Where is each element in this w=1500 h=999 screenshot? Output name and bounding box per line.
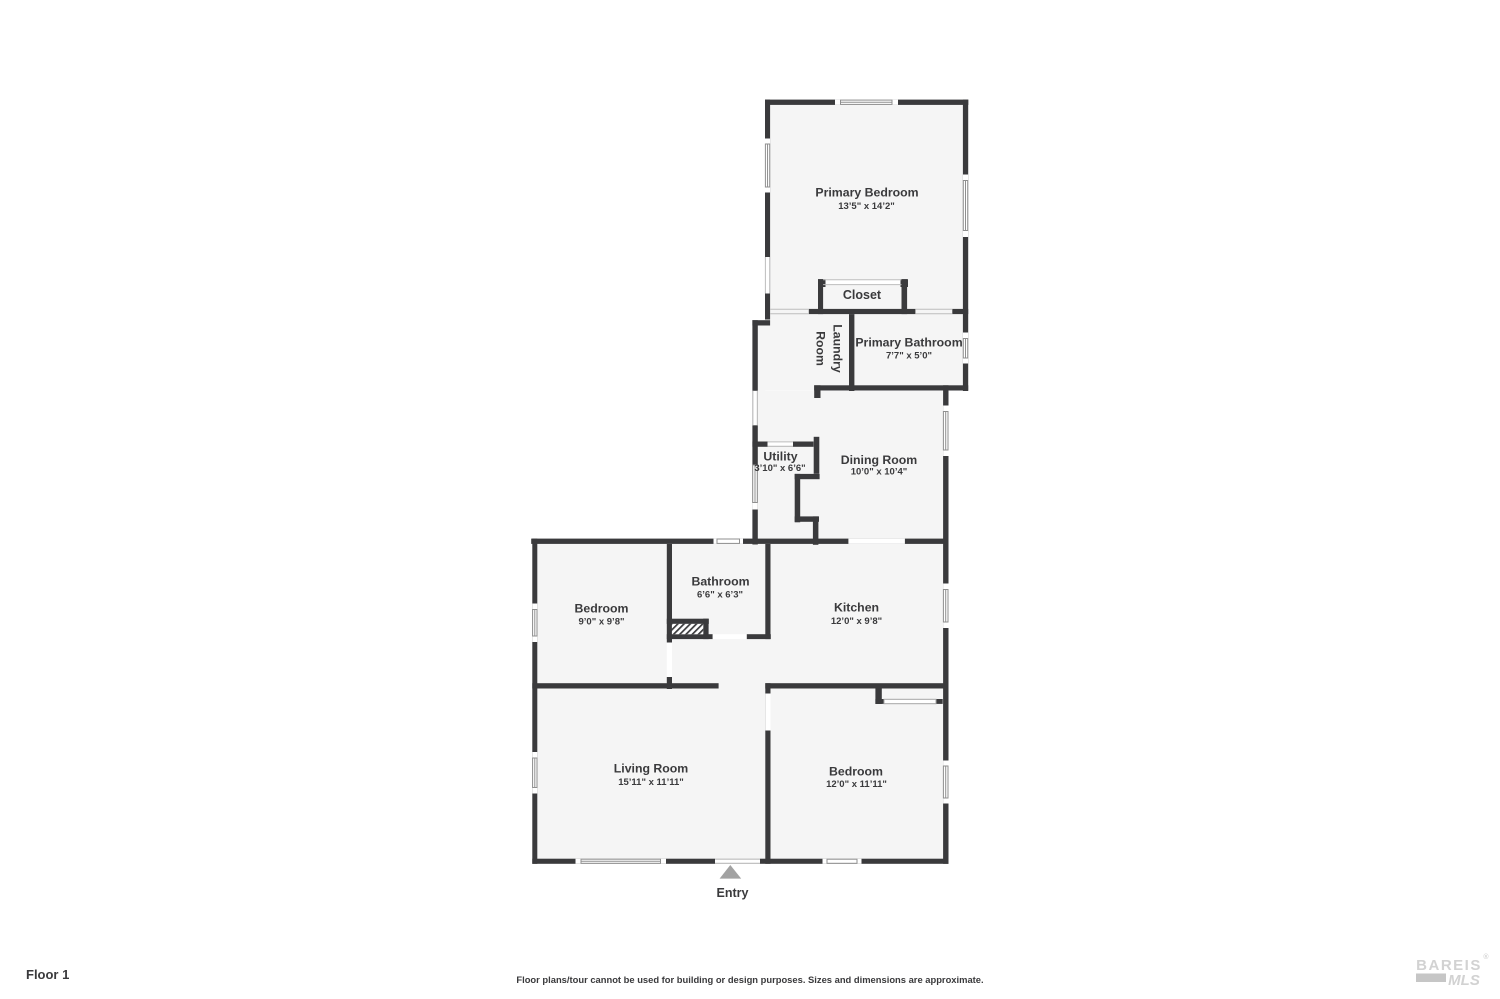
svg-text:Bathroom: Bathroom: [691, 575, 749, 589]
svg-text:Laundry: Laundry: [831, 324, 845, 373]
svg-text:10’0" x 10’4": 10’0" x 10’4": [851, 467, 908, 478]
svg-text:6’6" x 6’3": 6’6" x 6’3": [697, 590, 743, 601]
svg-text:Bedroom: Bedroom: [575, 602, 629, 616]
svg-text:Dining Room: Dining Room: [841, 453, 918, 467]
svg-text:12’0" x 9’8": 12’0" x 9’8": [831, 616, 882, 627]
svg-text:15’11" x 11’11": 15’11" x 11’11": [618, 777, 684, 788]
svg-text:3’10" x 6’6": 3’10" x 6’6": [754, 463, 805, 474]
svg-text:Entry: Entry: [717, 886, 749, 900]
svg-text:Living Room: Living Room: [614, 762, 689, 776]
svg-text:Bedroom: Bedroom: [829, 765, 883, 779]
svg-text:Utility: Utility: [763, 450, 797, 464]
svg-text:®: ®: [1483, 953, 1489, 961]
svg-text:Floor 1: Floor 1: [26, 967, 69, 982]
svg-text:Primary Bathroom: Primary Bathroom: [855, 336, 962, 350]
svg-text:12’0" x 11’11": 12’0" x 11’11": [826, 779, 887, 790]
svg-text:Room: Room: [814, 331, 828, 366]
svg-text:Kitchen: Kitchen: [834, 601, 879, 615]
svg-text:MLS: MLS: [1448, 972, 1480, 989]
svg-text:9’0" x 9’8": 9’0" x 9’8": [579, 617, 625, 628]
svg-text:13’5" x 14’2": 13’5" x 14’2": [838, 201, 895, 212]
svg-text:Primary Bedroom: Primary Bedroom: [815, 186, 918, 200]
svg-text:Floor plans/tour cannot be use: Floor plans/tour cannot be used for buil…: [516, 974, 983, 985]
svg-text:Closet: Closet: [843, 288, 882, 302]
svg-text:7’7" x 5’0": 7’7" x 5’0": [886, 351, 932, 362]
